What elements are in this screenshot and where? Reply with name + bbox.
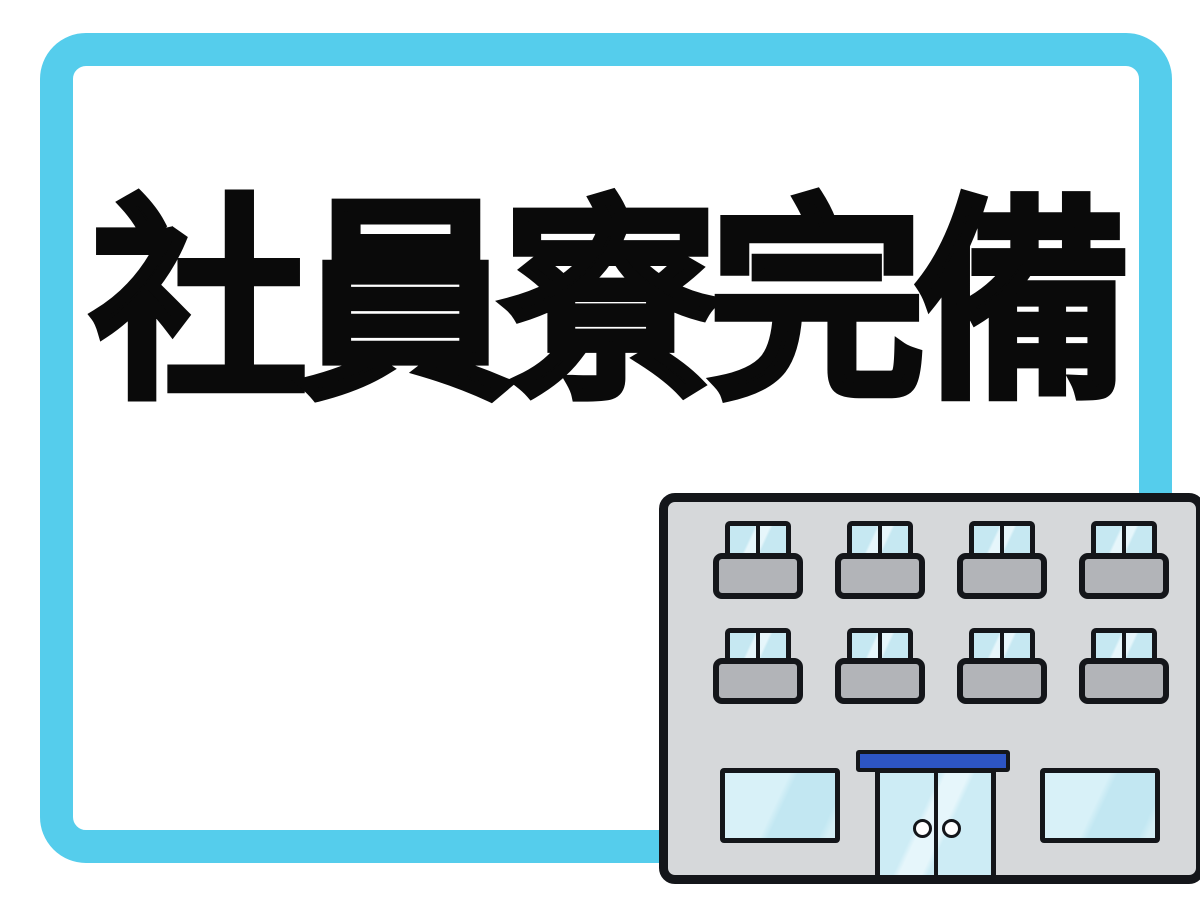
window-divider [756,525,760,555]
balcony-icon [835,553,925,599]
window-divider [1000,525,1004,555]
balcony-icon [1079,553,1169,599]
balcony-icon [713,658,803,704]
card-frame: 社員寮完備 [40,33,1172,863]
balcony-icon [957,658,1047,704]
dormitory-building-icon [659,493,1200,884]
door-divider [934,773,938,875]
balcony-icon [1079,658,1169,704]
entrance-awning-icon [856,750,1010,772]
window-divider [878,525,882,555]
balcony-icon [835,658,925,704]
ground-window-left-icon [720,768,840,843]
balcony-icon [713,553,803,599]
window-divider [1122,525,1126,555]
door-handle-icon [913,819,932,838]
entrance-door-icon [875,768,996,875]
poster-background: 社員寮完備 [0,0,1200,900]
headline-text: 社員寮完備 [73,194,1139,414]
ground-window-right-icon [1040,768,1160,843]
balcony-icon [957,553,1047,599]
door-handle-icon [942,819,961,838]
